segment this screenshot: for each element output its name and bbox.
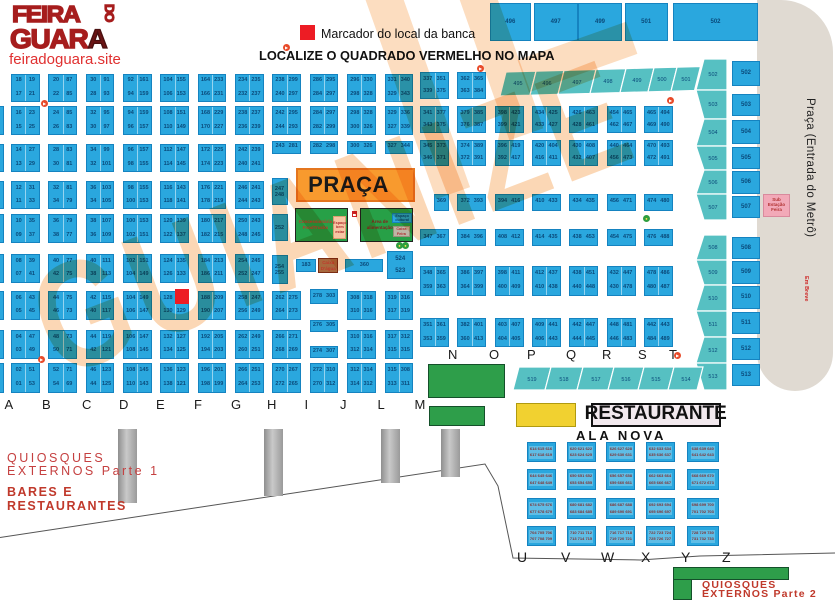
svg-text:517: 517 [591, 377, 600, 383]
svg-text:514: 514 [681, 377, 690, 383]
svg-text:515: 515 [651, 377, 660, 383]
svg-text:509: 509 [708, 270, 717, 276]
svg-text:500: 500 [657, 77, 666, 83]
svg-text:510: 510 [708, 296, 717, 302]
svg-text:505: 505 [708, 156, 717, 162]
svg-text:513: 513 [708, 374, 717, 380]
svg-text:518: 518 [559, 377, 568, 383]
svg-text:504: 504 [708, 130, 717, 136]
svg-text:507: 507 [708, 205, 717, 211]
svg-text:508: 508 [708, 245, 717, 251]
svg-text:502: 502 [708, 72, 717, 78]
svg-text:512: 512 [708, 348, 717, 354]
svg-text:501: 501 [681, 77, 690, 83]
svg-text:506: 506 [708, 180, 717, 186]
svg-text:511: 511 [709, 322, 718, 328]
svg-text:516: 516 [621, 377, 630, 383]
svg-text:503: 503 [708, 102, 717, 108]
svg-text:499: 499 [632, 78, 641, 84]
svg-text:519: 519 [527, 377, 536, 383]
